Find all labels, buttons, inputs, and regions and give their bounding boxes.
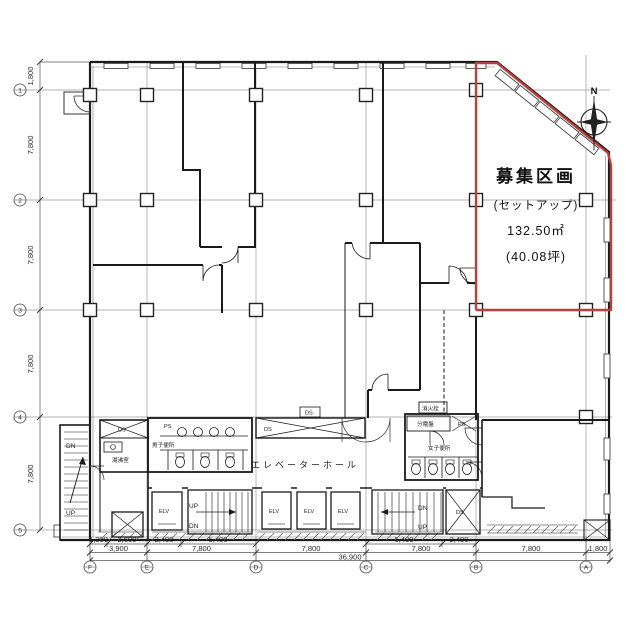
chamfer-windows — [495, 69, 599, 154]
service-core: DN UP DS 湯沸室 PS 男子便所 — [60, 402, 610, 540]
grid-bubbles-bottom: F E D C B A — [84, 561, 592, 573]
floor-plan-page: 1,800 7,800 7,800 7,800 7,800 1,300 2 — [0, 0, 630, 630]
stair-west-dn-label: DN — [66, 443, 76, 450]
dim-left-4: 7,800 — [26, 464, 35, 483]
elec-panel-label: 分電盤 — [417, 420, 434, 428]
womens-toilet-ps-label: PS — [458, 422, 466, 428]
grid-row-4: 4 — [18, 415, 22, 422]
mens-toilet-label: 男子便所 — [152, 441, 175, 449]
grid-col-B: B — [474, 565, 478, 572]
dim-main-4: 7,800 — [521, 544, 540, 553]
north-label: N — [591, 86, 598, 97]
stair-2-up-label: UP — [418, 524, 427, 531]
grid-lines — [26, 55, 616, 561]
ds-small-box-label: DS — [305, 411, 313, 417]
ds-strip-label: DS — [264, 427, 272, 433]
grid-row-5: 5 — [18, 528, 22, 535]
top-windows — [104, 63, 486, 68]
shaft-bottom-left — [112, 512, 143, 537]
grid-row-3: 3 — [18, 308, 22, 315]
grid-col-D: D — [254, 565, 259, 572]
dim-main-5: 1,800 — [588, 544, 607, 553]
womens-toilet-label: 女子便所 — [428, 444, 451, 452]
stair-1-up-label: UP — [189, 503, 198, 510]
dim-main-3: 7,800 — [411, 544, 430, 553]
stair-2-dn-label: DN — [418, 505, 428, 512]
stair-1-dn-label: DN — [189, 523, 199, 530]
stair-west-up-label: UP — [66, 510, 75, 517]
elevator-4-label: ELV — [338, 509, 348, 515]
ds-shaft-1-label: DS — [118, 428, 126, 434]
dim-main-2: 7,800 — [301, 544, 320, 553]
right-room — [465, 420, 610, 540]
kitchenette-label: 湯沸室 — [112, 456, 129, 464]
unit-subtitle: (セットアップ) — [494, 199, 579, 212]
fire-hydrant-label: 消火栓 — [422, 405, 439, 413]
corridor-door-arc — [90, 466, 104, 480]
dim-total: 36,900 — [338, 553, 361, 562]
grid-row-1: 1 — [18, 88, 22, 95]
interior-partitions — [93, 62, 476, 420]
ds-shaft-2-label: DS — [456, 510, 464, 516]
dim-left-3: 7,800 — [26, 354, 35, 373]
core-stair-2 — [372, 490, 443, 534]
elevator-1-label: ELV — [159, 509, 169, 515]
grid-col-C: C — [364, 565, 369, 572]
available-unit-outline — [476, 63, 611, 310]
grid-col-F: F — [88, 565, 92, 572]
mens-toilet-ps-label: PS — [164, 424, 172, 430]
floor-plan-drawing: 1,800 7,800 7,800 7,800 7,800 1,300 2 — [0, 0, 630, 630]
dim-left-1: 7,800 — [26, 135, 35, 154]
unit-area-tsubo: (40.08坪) — [506, 250, 566, 264]
elevator-2-label: ELV — [269, 509, 279, 515]
unit-area-m2: 132.50㎡ — [507, 224, 565, 238]
elevator-hall-label: エレベーターホール — [251, 460, 359, 470]
unit-title: 募集区画 — [495, 166, 576, 186]
elevator-3-label: ELV — [304, 509, 314, 515]
dim-main-1: 7,800 — [192, 544, 211, 553]
grid-col-A: A — [584, 565, 589, 572]
grid-bubbles-left: 1 2 3 4 5 — [14, 84, 26, 536]
grid-row-2: 2 — [18, 198, 22, 205]
dim-left-0: 1,800 — [26, 66, 35, 85]
dim-left-2: 7,800 — [26, 245, 35, 264]
dim-main-0: 3,900 — [109, 544, 128, 553]
available-unit: 募集区画 (セットアップ) 132.50㎡ (40.08坪) — [476, 63, 611, 310]
grid-col-E: E — [145, 565, 150, 572]
